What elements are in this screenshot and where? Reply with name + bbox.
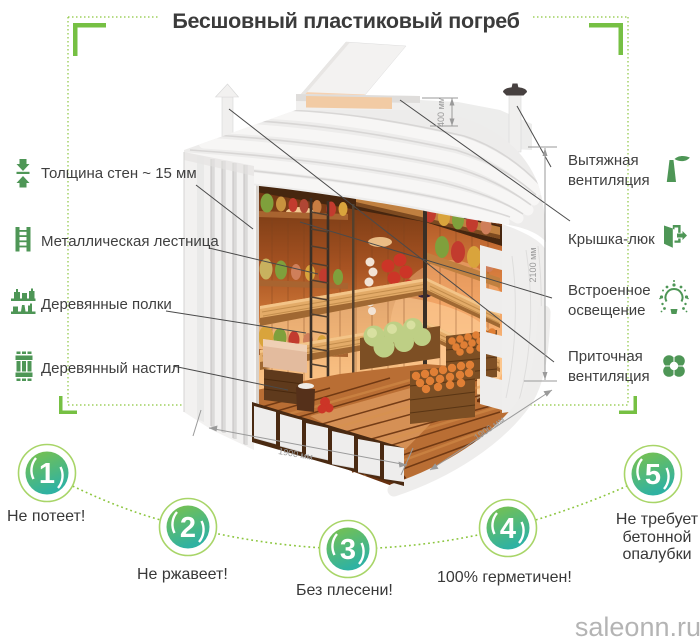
svg-text:4: 4 [500,513,516,545]
svg-text:2: 2 [180,512,196,544]
svg-text:2100 мм: 2100 мм [528,248,538,283]
svg-text:3: 3 [340,534,356,566]
svg-text:1: 1 [39,458,55,490]
svg-text:400 мм: 400 мм [436,97,446,127]
svg-text:5: 5 [645,459,661,491]
